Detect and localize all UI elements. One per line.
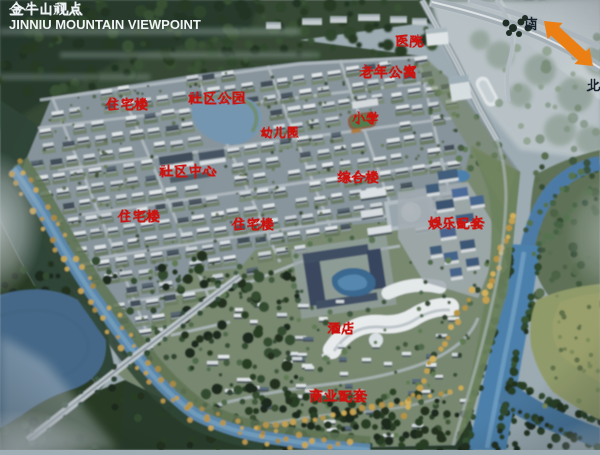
svg-text:JINNIU MOUNTAIN VIEWPOINT: JINNIU MOUNTAIN VIEWPOINT [9, 17, 201, 32]
